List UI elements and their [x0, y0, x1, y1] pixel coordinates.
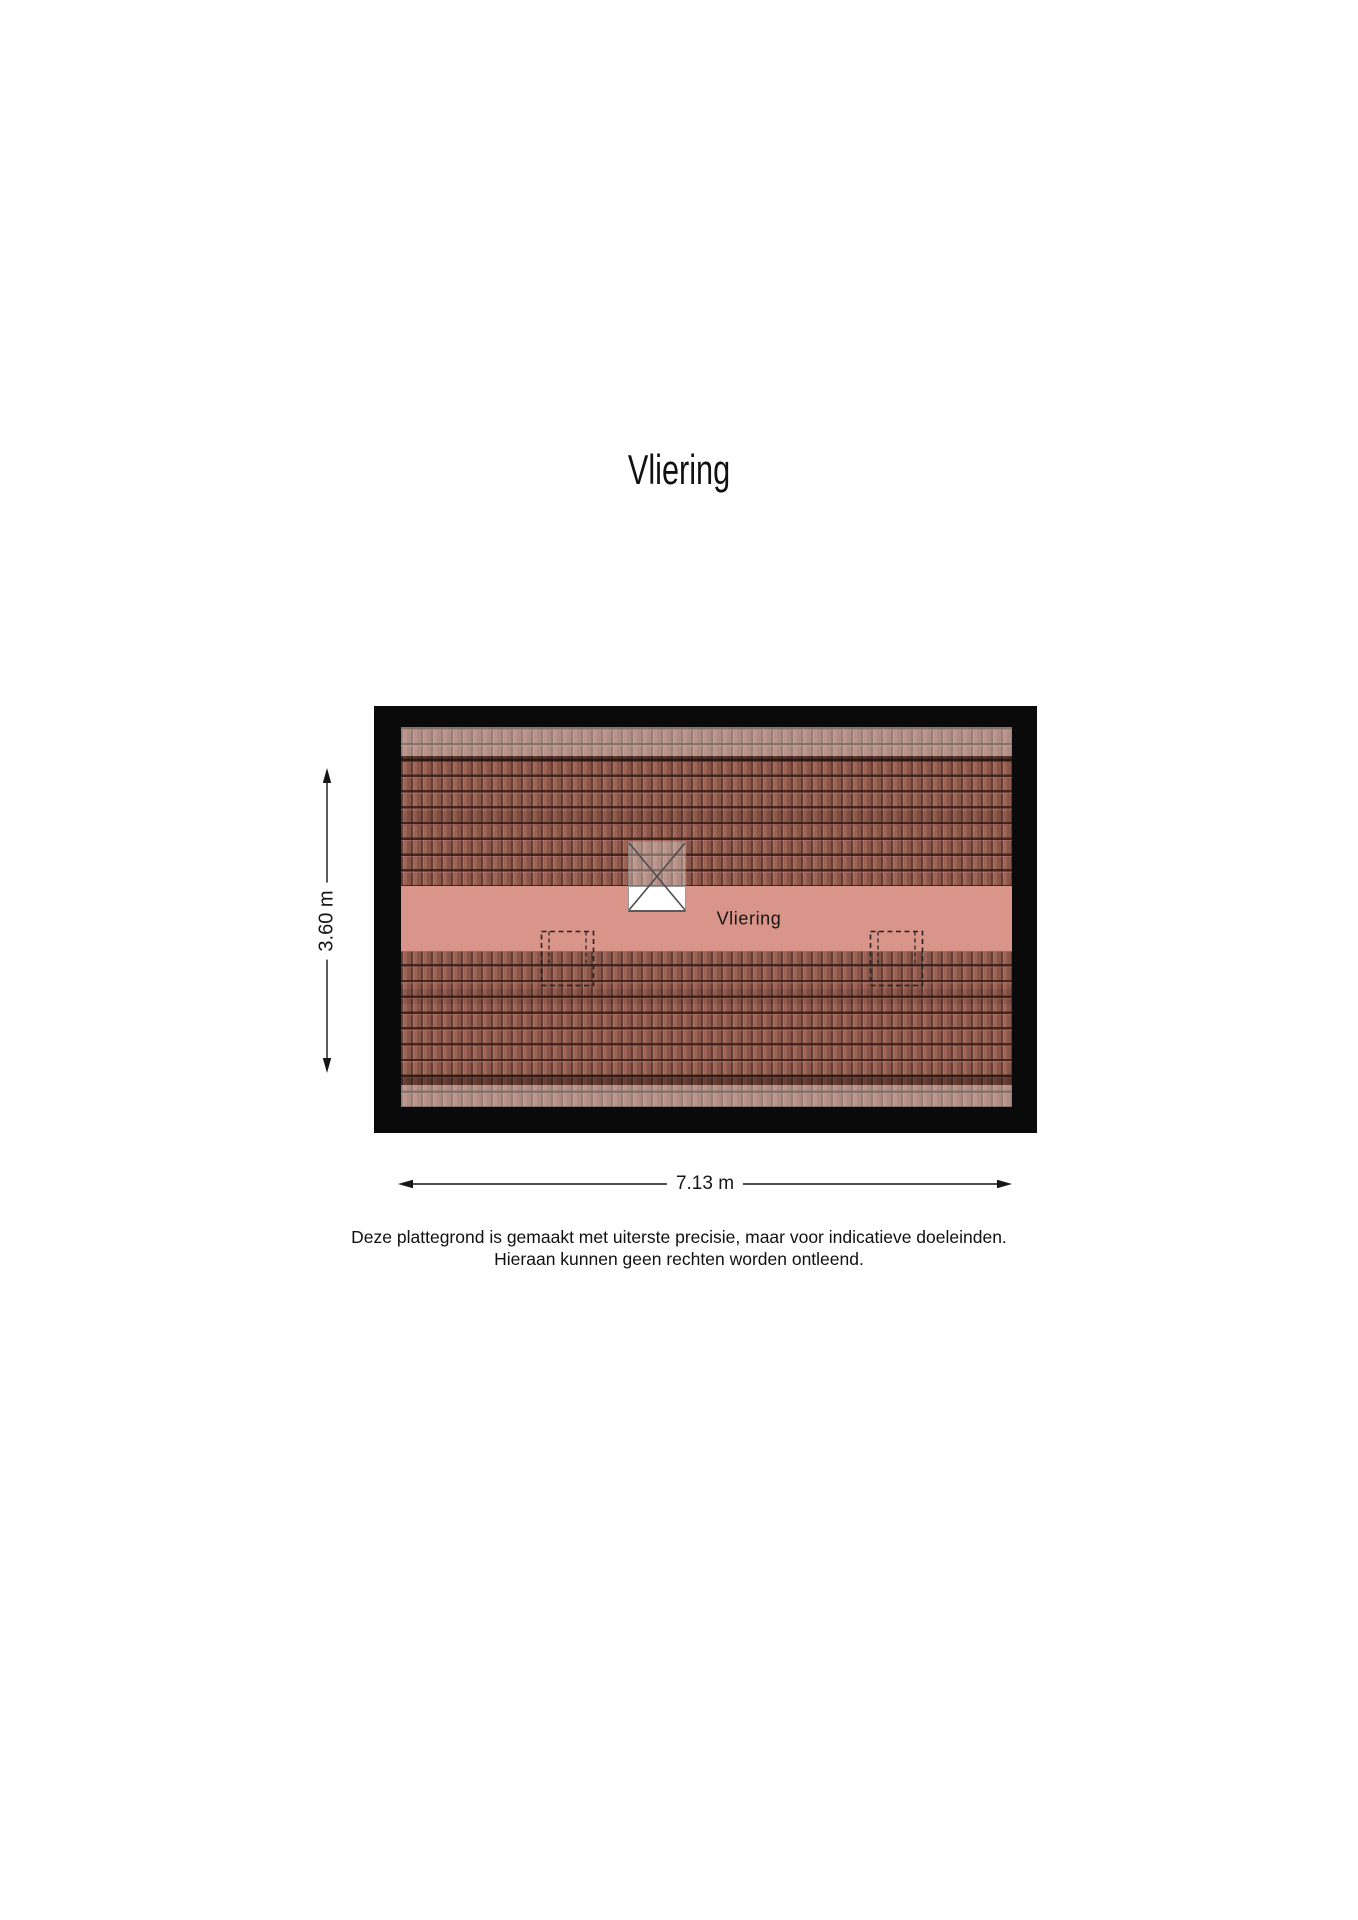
- height-dimension-label: 3.60 m: [314, 882, 341, 959]
- floorplan: Vliering: [374, 706, 1037, 1133]
- roof-shade-band-lower: [401, 989, 1012, 1004]
- roof-eave-strip-top: [401, 727, 1012, 756]
- width-dimension: 7.13 m: [398, 1171, 1012, 1197]
- roof-tiles: Vliering: [401, 727, 1012, 1107]
- width-dimension-label: 7.13 m: [667, 1173, 743, 1195]
- height-dimension: 3.60 m: [312, 768, 342, 1073]
- roof-ridge-line-top: [401, 756, 1012, 762]
- roof-hatch-left: [540, 930, 595, 987]
- roof-hatch-right: [869, 930, 924, 987]
- room-label: Vliering: [717, 909, 782, 930]
- disclaimer-line-2: Hieraan kunnen geen rechten worden ontle…: [0, 1248, 1358, 1270]
- skylight-cross-icon: [628, 841, 686, 912]
- disclaimer-line-1: Deze plattegrond is gemaakt met uiterste…: [0, 1226, 1358, 1248]
- skylight-dormer: [628, 841, 686, 912]
- roof-shade-band-upper: [401, 811, 1012, 826]
- floorplan-page: Vliering Vliering: [0, 0, 1358, 1920]
- roof-eave-strip-bottom: [401, 1085, 1012, 1107]
- page-title: Vliering: [0, 446, 1358, 494]
- disclaimer: Deze plattegrond is gemaakt met uiterste…: [0, 1226, 1358, 1270]
- roof-ridge-line-bottom: [401, 1075, 1012, 1085]
- page-title-text: Vliering: [628, 446, 730, 494]
